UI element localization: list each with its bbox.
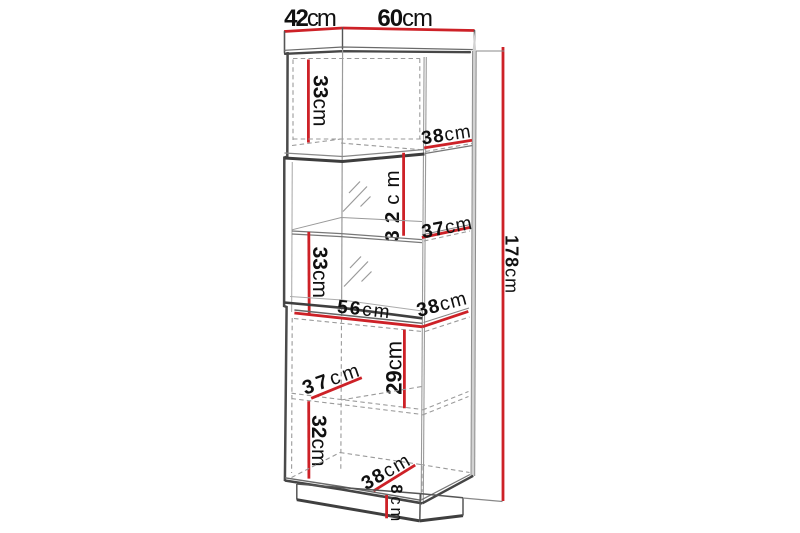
svg-text:8cm: 8cm bbox=[387, 484, 405, 524]
svg-text:33cm: 33cm bbox=[308, 247, 331, 298]
svg-text:178cm: 178cm bbox=[502, 235, 522, 294]
svg-text:32cm: 32cm bbox=[381, 163, 404, 241]
svg-text:60cm: 60cm bbox=[377, 5, 432, 32]
svg-text:42cm: 42cm bbox=[284, 5, 336, 32]
svg-text:33cm: 33cm bbox=[308, 75, 331, 126]
svg-text:29cm: 29cm bbox=[381, 341, 406, 395]
